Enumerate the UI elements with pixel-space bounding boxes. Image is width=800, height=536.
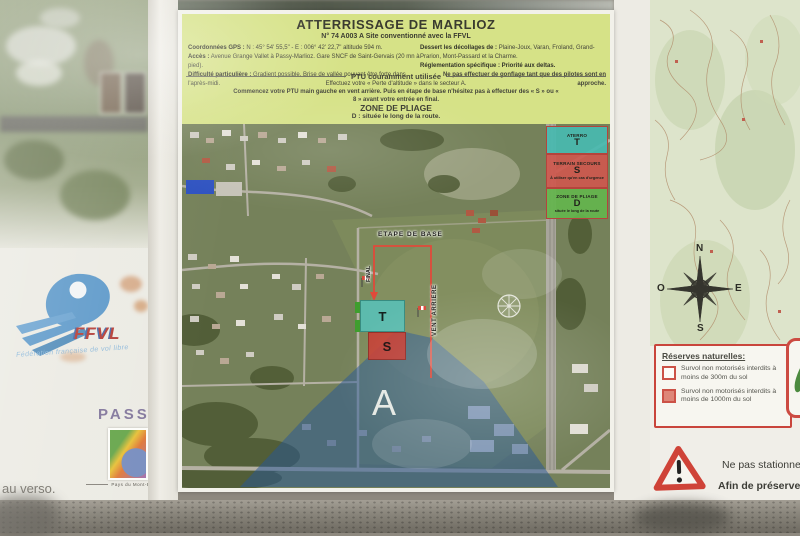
divider-rule <box>186 76 346 77</box>
reserve-item-300m: Survol non motorisés interdits à moins d… <box>662 365 784 383</box>
photo-blob <box>4 140 64 180</box>
warning-text-2: Afin de préserver n <box>718 480 800 492</box>
ptu-divider: PTU couramment utilisée <box>186 72 606 81</box>
compass-east: E <box>735 283 742 294</box>
landing-zone-t: T <box>360 300 405 332</box>
dessert-label: Dessert les décollages de : <box>420 45 497 51</box>
compass-rose: N S O E <box>655 243 745 335</box>
small-photo <box>124 72 146 114</box>
board-right-margin <box>614 0 650 505</box>
marlioz-landing-poster: ATTERRISSAGE DE MARLIOZ N° 74 A003 A Sit… <box>178 10 614 492</box>
legend-aterro-letter: T <box>574 138 580 148</box>
passy-logo-icon <box>108 428 148 480</box>
legend-pliage: ZONE DE PLIAGE D située le long de la ro… <box>546 188 608 219</box>
reserve-text-300m: Survol non motorisés interdits à moins d… <box>681 365 784 383</box>
aerial-map: ETAPE DE BASE FINAL VENT ARRIERE T S A A… <box>182 124 610 488</box>
compass-west: O <box>657 283 665 294</box>
verso-text: au verso. <box>2 481 55 496</box>
poster-header: ATTERRISSAGE DE MARLIOZ N° 74 A003 A Sit… <box>182 14 610 124</box>
warning-text-1: Ne pas stationner s <box>722 459 800 471</box>
reserves-naturelles-box: Réserves naturelles: Survol non motorisé… <box>654 344 792 428</box>
legend-secours: TERRAIN SECOURS S À utiliser qu'en cas d… <box>546 154 608 188</box>
map-legend: ATERRO T TERRAIN SECOURS S À utiliser qu… <box>546 126 608 219</box>
reglementation-line: Réglementation spécifique : Priorité aux… <box>420 62 606 71</box>
legend-pliage-letter: D <box>574 199 581 209</box>
photo-blob <box>60 170 130 220</box>
ledge-shadow <box>0 496 58 536</box>
legend-aterro: ATERRO T <box>546 126 608 154</box>
reserve-edelweiss-symbol <box>786 338 800 418</box>
reserves-title: Réserves naturelles: <box>662 351 784 361</box>
legend-secours-letter: S <box>574 166 580 176</box>
label-etape-de-base: ETAPE DE BASE <box>378 231 443 238</box>
ffvl-wordmark: FFVL <box>74 324 121 344</box>
rust-stain <box>134 300 148 312</box>
ptu-instruction-2: Commencez votre PTU main gauche en vent … <box>231 88 561 104</box>
compass-star-icon <box>665 254 735 324</box>
label-vent-arriere: VENT ARRIERE <box>432 284 438 336</box>
ptu-instruction-1: Effectuez votre « Perte d'altitude » dan… <box>182 81 610 87</box>
dessert-line: Dessert les décollages de : Plaine-Joux,… <box>420 44 606 62</box>
board-frame <box>148 0 178 505</box>
photo-blob <box>16 60 62 86</box>
photo-blob <box>40 8 80 28</box>
acces-text: Avenue Grange Vallet à Passy-Marlioz. Ga… <box>188 54 420 69</box>
pliage-text: D : située le long de la route. <box>182 113 610 120</box>
reserve-filled-swatch <box>662 389 676 403</box>
adjacent-aerial-photo <box>0 0 148 248</box>
gps-text: N : 45° 54' 55,5" - E : 006° 42' 22,7" a… <box>245 45 383 51</box>
ledge-shadow <box>634 503 730 533</box>
compass-north: N <box>696 243 703 254</box>
sector-a-letter: A <box>372 382 396 424</box>
reglementation-label: Réglementation spécifique : <box>420 63 500 69</box>
reserve-text-1000m: Survol non motorisés interdits à moins d… <box>681 388 784 406</box>
label-final: FINAL <box>366 266 372 282</box>
reglementation-text: Priorité aux deltas. <box>500 63 555 69</box>
acces-line: Accès : Avenue Grange Vallet à Passy-Mar… <box>188 53 420 71</box>
ptu-divider-title: PTU couramment utilisée <box>351 72 441 81</box>
reserve-item-1000m: Survol non motorisés interdits à moins d… <box>662 388 784 406</box>
legend-pliage-note: située le long de la route <box>555 209 600 213</box>
gps-label: Coordonnées GPS : <box>188 45 245 51</box>
rust-stain <box>60 352 86 362</box>
adjacent-panel: FFVL Fédération française de vol libre P… <box>0 0 148 505</box>
rule-line <box>86 484 108 485</box>
divider-rule <box>446 76 606 77</box>
rust-stain <box>120 276 142 292</box>
warning-triangle-icon <box>651 443 707 493</box>
emergency-zone-s: S <box>368 332 406 360</box>
pliage-title: ZONE DE PLIAGE <box>182 103 610 113</box>
photo-road <box>0 116 148 132</box>
gps-line: Coordonnées GPS : N : 45° 54' 55,5" - E … <box>188 44 420 53</box>
poster-subtitle: N° 74 A003 A Site conventionné avec la F… <box>182 33 610 40</box>
poster-title: ATTERRISSAGE DE MARLIOZ <box>182 17 610 32</box>
acces-label: Accès : <box>188 54 209 60</box>
legend-secours-note: À utiliser qu'en cas d'urgence <box>550 176 604 180</box>
compass-south: S <box>697 323 704 334</box>
leaf-shape <box>792 358 800 393</box>
reserve-outline-swatch <box>662 366 676 380</box>
small-photo <box>100 72 122 114</box>
